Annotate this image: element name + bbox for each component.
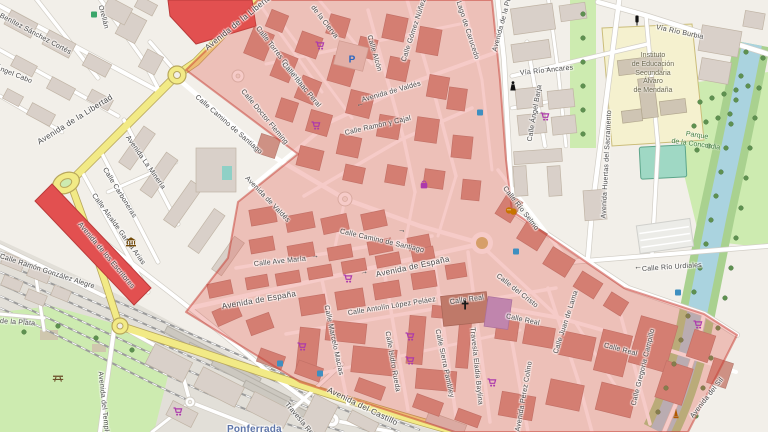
base-map-svg — [0, 0, 768, 432]
parking-lot — [636, 218, 693, 253]
map-canvas[interactable]: Benítez Sánchez CortésÁngel CaboOrellánA… — [0, 0, 768, 432]
